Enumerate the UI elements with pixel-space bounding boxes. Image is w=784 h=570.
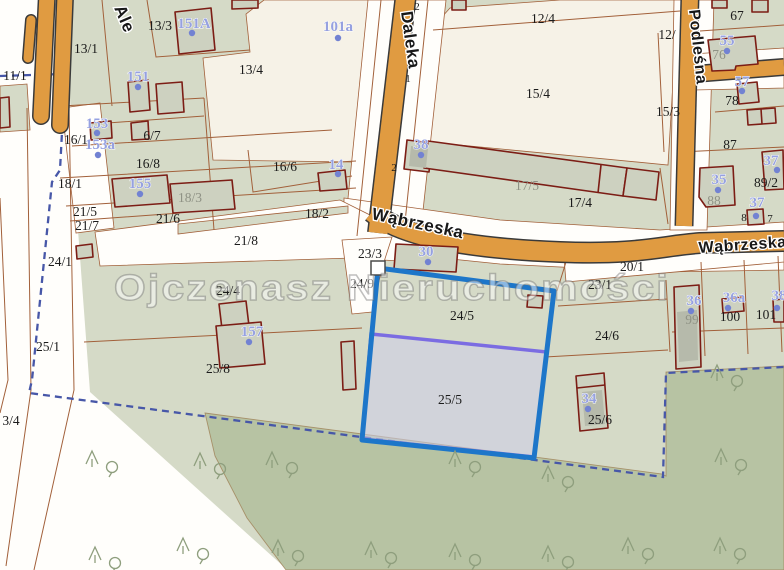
building-address-label: 101a <box>323 19 354 35</box>
parcel-label: 76 <box>712 47 726 62</box>
parcel-label: 67 <box>730 8 744 23</box>
parcel-label: 25/1 <box>36 339 60 354</box>
address-point-icon <box>335 171 341 177</box>
building-address-label: 57 <box>735 74 751 90</box>
address-point-icon <box>94 130 100 136</box>
building-address-label: 30 <box>419 244 434 260</box>
parcel-label: 24/1 <box>48 254 72 269</box>
building-address-label: 36a <box>723 290 746 306</box>
address-point-icon <box>725 305 731 311</box>
parcel-label: 89/2 <box>754 175 778 190</box>
parcel-label: 21/8 <box>234 233 258 248</box>
parcel-label: 25/5 <box>438 392 462 407</box>
parcel-label: 11/1 <box>3 68 27 83</box>
building-address-label: 151 <box>127 69 150 85</box>
parcel-label: 16/6 <box>273 159 297 174</box>
parcel-label: 101 <box>756 307 776 322</box>
small-parcel-label: 7 <box>767 213 773 225</box>
parcel-label: 12/4 <box>531 11 555 26</box>
watermark-text: Ojczenasz Nieruchomości <box>114 267 670 308</box>
parcel-label: 25/8 <box>206 361 230 376</box>
parcel-label: 16/8 <box>136 156 160 171</box>
building-address-label: 151A <box>177 16 211 32</box>
parcel-label: 21/5 <box>73 204 97 219</box>
parcel-label: 18/1 <box>58 176 82 191</box>
parcel-label: 12/ <box>658 27 676 42</box>
parcel-label: 99 <box>685 312 699 327</box>
parcel-label: 21/6 <box>156 211 180 226</box>
address-point-icon <box>753 213 759 219</box>
parcel-label: 23/3 <box>358 246 382 261</box>
parcel-label: 13/3 <box>148 18 172 33</box>
building-address-label: 38 <box>414 137 429 153</box>
building-address-label: 155 <box>129 176 152 192</box>
parcel-label: 17/5 <box>515 178 539 193</box>
small-parcel-label: 2 <box>391 162 397 174</box>
parcel-label: 18/2 <box>305 206 329 221</box>
parcel-label: 3/4 <box>2 413 20 428</box>
building-address-label: 14 <box>329 157 345 173</box>
building-address-label: 38 <box>772 288 784 304</box>
address-point-icon <box>135 84 141 90</box>
parcel-label: 15/4 <box>526 86 550 101</box>
building-address-label: 35 <box>712 172 727 188</box>
building-address-label: 37 <box>750 195 766 211</box>
address-point-icon <box>774 305 780 311</box>
address-point-icon <box>774 167 780 173</box>
address-point-icon <box>425 259 431 265</box>
address-point-icon <box>688 308 694 314</box>
parcel-label: 6/7 <box>143 128 161 143</box>
address-point-icon <box>724 48 730 54</box>
address-point-icon <box>739 88 745 94</box>
building-address-label: 36 <box>687 293 703 309</box>
small-parcel-label: 1 <box>405 73 411 85</box>
building-address-label: 34 <box>582 391 598 407</box>
building-address-label: 37 <box>764 153 780 169</box>
address-point-icon <box>418 152 424 158</box>
parcel-label: 21/7 <box>75 218 99 233</box>
parcel-label: 88 <box>707 193 721 208</box>
parcel-label: 13/1 <box>74 41 98 56</box>
building-address-label: 55 <box>720 33 735 49</box>
parcel-label: 100 <box>720 309 741 324</box>
address-point-icon <box>335 35 341 41</box>
address-point-icon <box>246 339 252 345</box>
address-point-icon <box>715 187 721 193</box>
parcel-label: 13/4 <box>239 62 263 77</box>
parcel-label: 25/6 <box>588 412 612 427</box>
parcel-label: 78 <box>725 93 739 108</box>
address-point-icon <box>585 406 591 412</box>
parcel-label: 87 <box>723 137 737 152</box>
parcel-label: 18/3 <box>178 190 202 205</box>
parcel-label: 15/3 <box>656 104 680 119</box>
building-address-label: 153a <box>85 137 116 153</box>
parcel-label: 24/5 <box>450 308 474 323</box>
parcel-label: 24/6 <box>595 328 619 343</box>
map-viewport[interactable]: 13/313/113/411/112/415/415/312/677678878… <box>0 0 784 570</box>
address-point-icon <box>95 152 101 158</box>
small-parcel-label: 8 <box>741 212 747 224</box>
address-point-icon <box>189 30 195 36</box>
parcel-label: 17/4 <box>568 195 592 210</box>
building-address-label: 157 <box>241 324 264 340</box>
building-address-label: 153 <box>86 116 109 132</box>
address-point-icon <box>137 191 143 197</box>
